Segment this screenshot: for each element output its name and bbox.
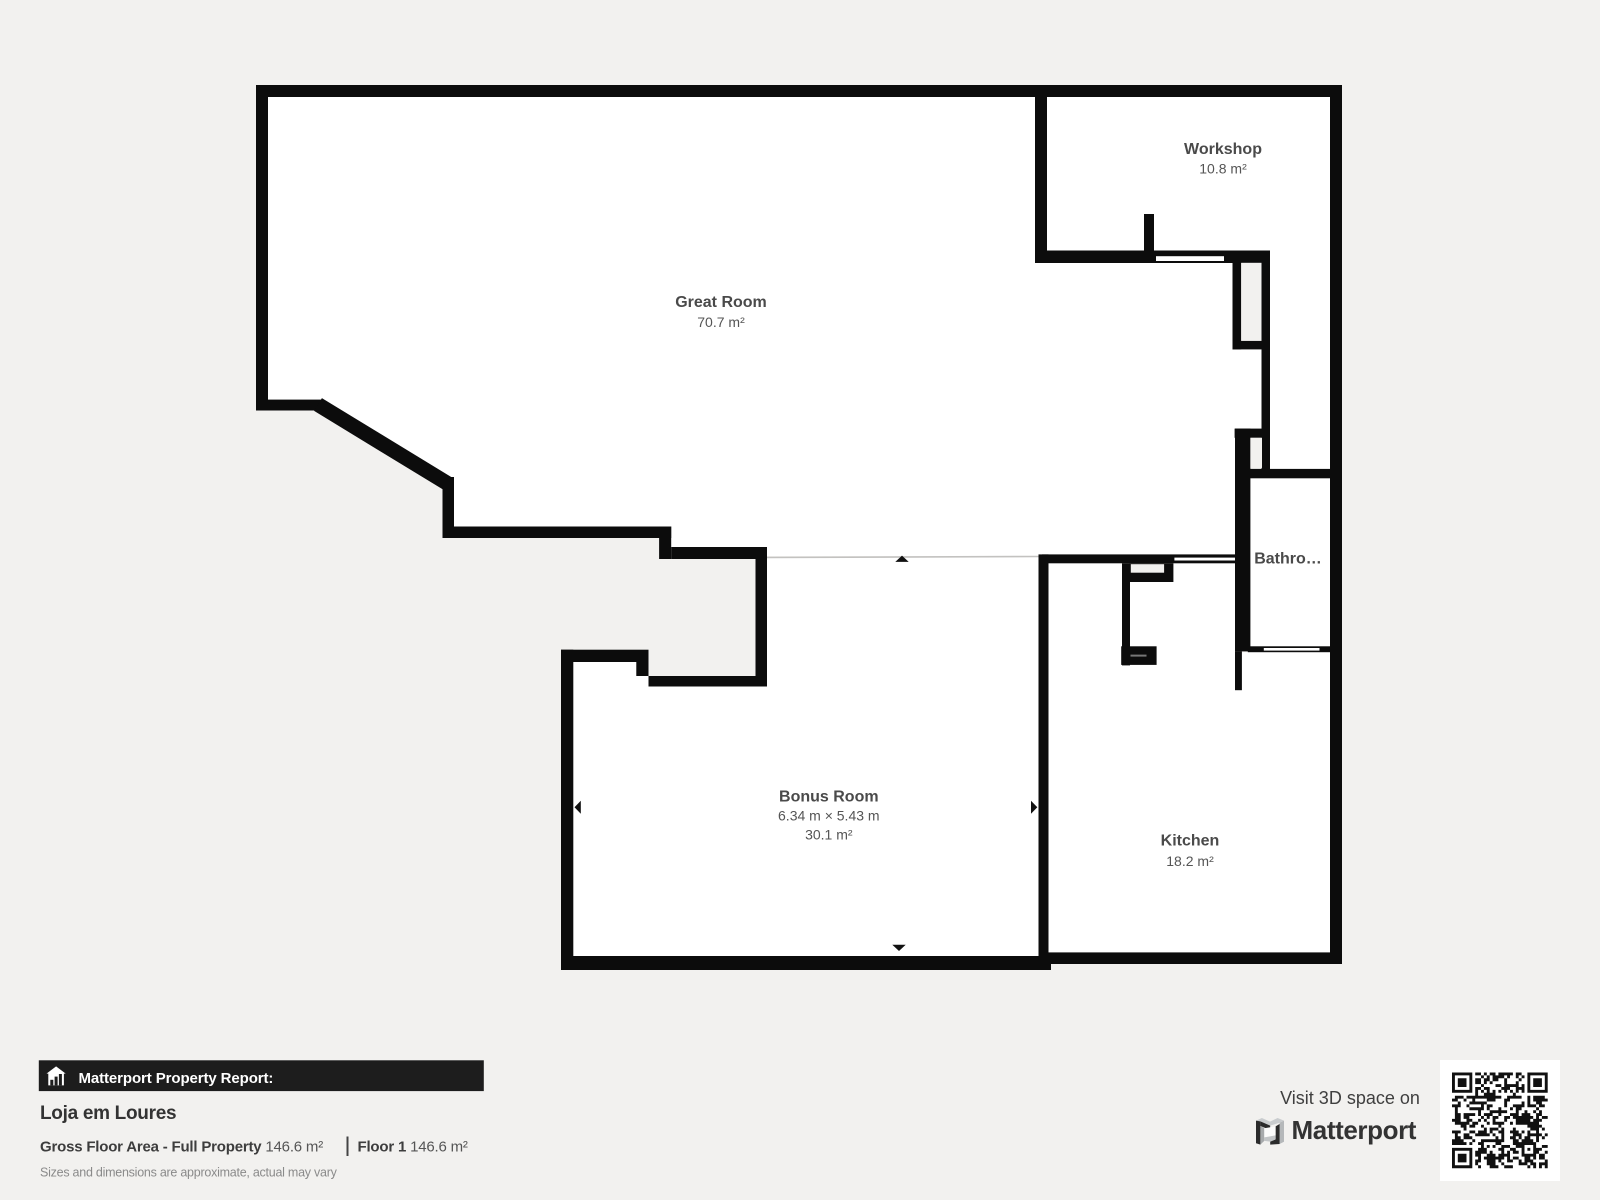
svg-text:Matterport: Matterport [1292, 1115, 1417, 1145]
svg-text:30.1 m²: 30.1 m² [805, 827, 853, 843]
svg-text:Gross Floor Area - Full Proper: Gross Floor Area - Full Property 146.6 m… [40, 1139, 323, 1156]
svg-text:10.8 m²: 10.8 m² [1199, 161, 1247, 177]
svg-text:Workshop: Workshop [1184, 141, 1262, 158]
svg-text:Matterport Property Report:: Matterport Property Report: [79, 1070, 274, 1087]
svg-text:70.7 m²: 70.7 m² [697, 314, 745, 330]
svg-text:Loja em Loures: Loja em Loures [40, 1103, 176, 1124]
svg-text:Great Room: Great Room [675, 294, 767, 311]
svg-text:Visit 3D space on: Visit 3D space on [1280, 1088, 1420, 1108]
svg-text:Bathro…: Bathro… [1254, 551, 1322, 568]
svg-text:6.34 m × 5.43 m: 6.34 m × 5.43 m [778, 808, 880, 824]
svg-text:Sizes and dimensions are appro: Sizes and dimensions are approximate, ac… [40, 1166, 338, 1180]
svg-text:18.2 m²: 18.2 m² [1166, 853, 1214, 869]
svg-text:Kitchen: Kitchen [1161, 833, 1220, 850]
svg-text:Bonus Room: Bonus Room [779, 789, 879, 806]
svg-text:Floor 1 146.6 m²: Floor 1 146.6 m² [358, 1139, 468, 1156]
